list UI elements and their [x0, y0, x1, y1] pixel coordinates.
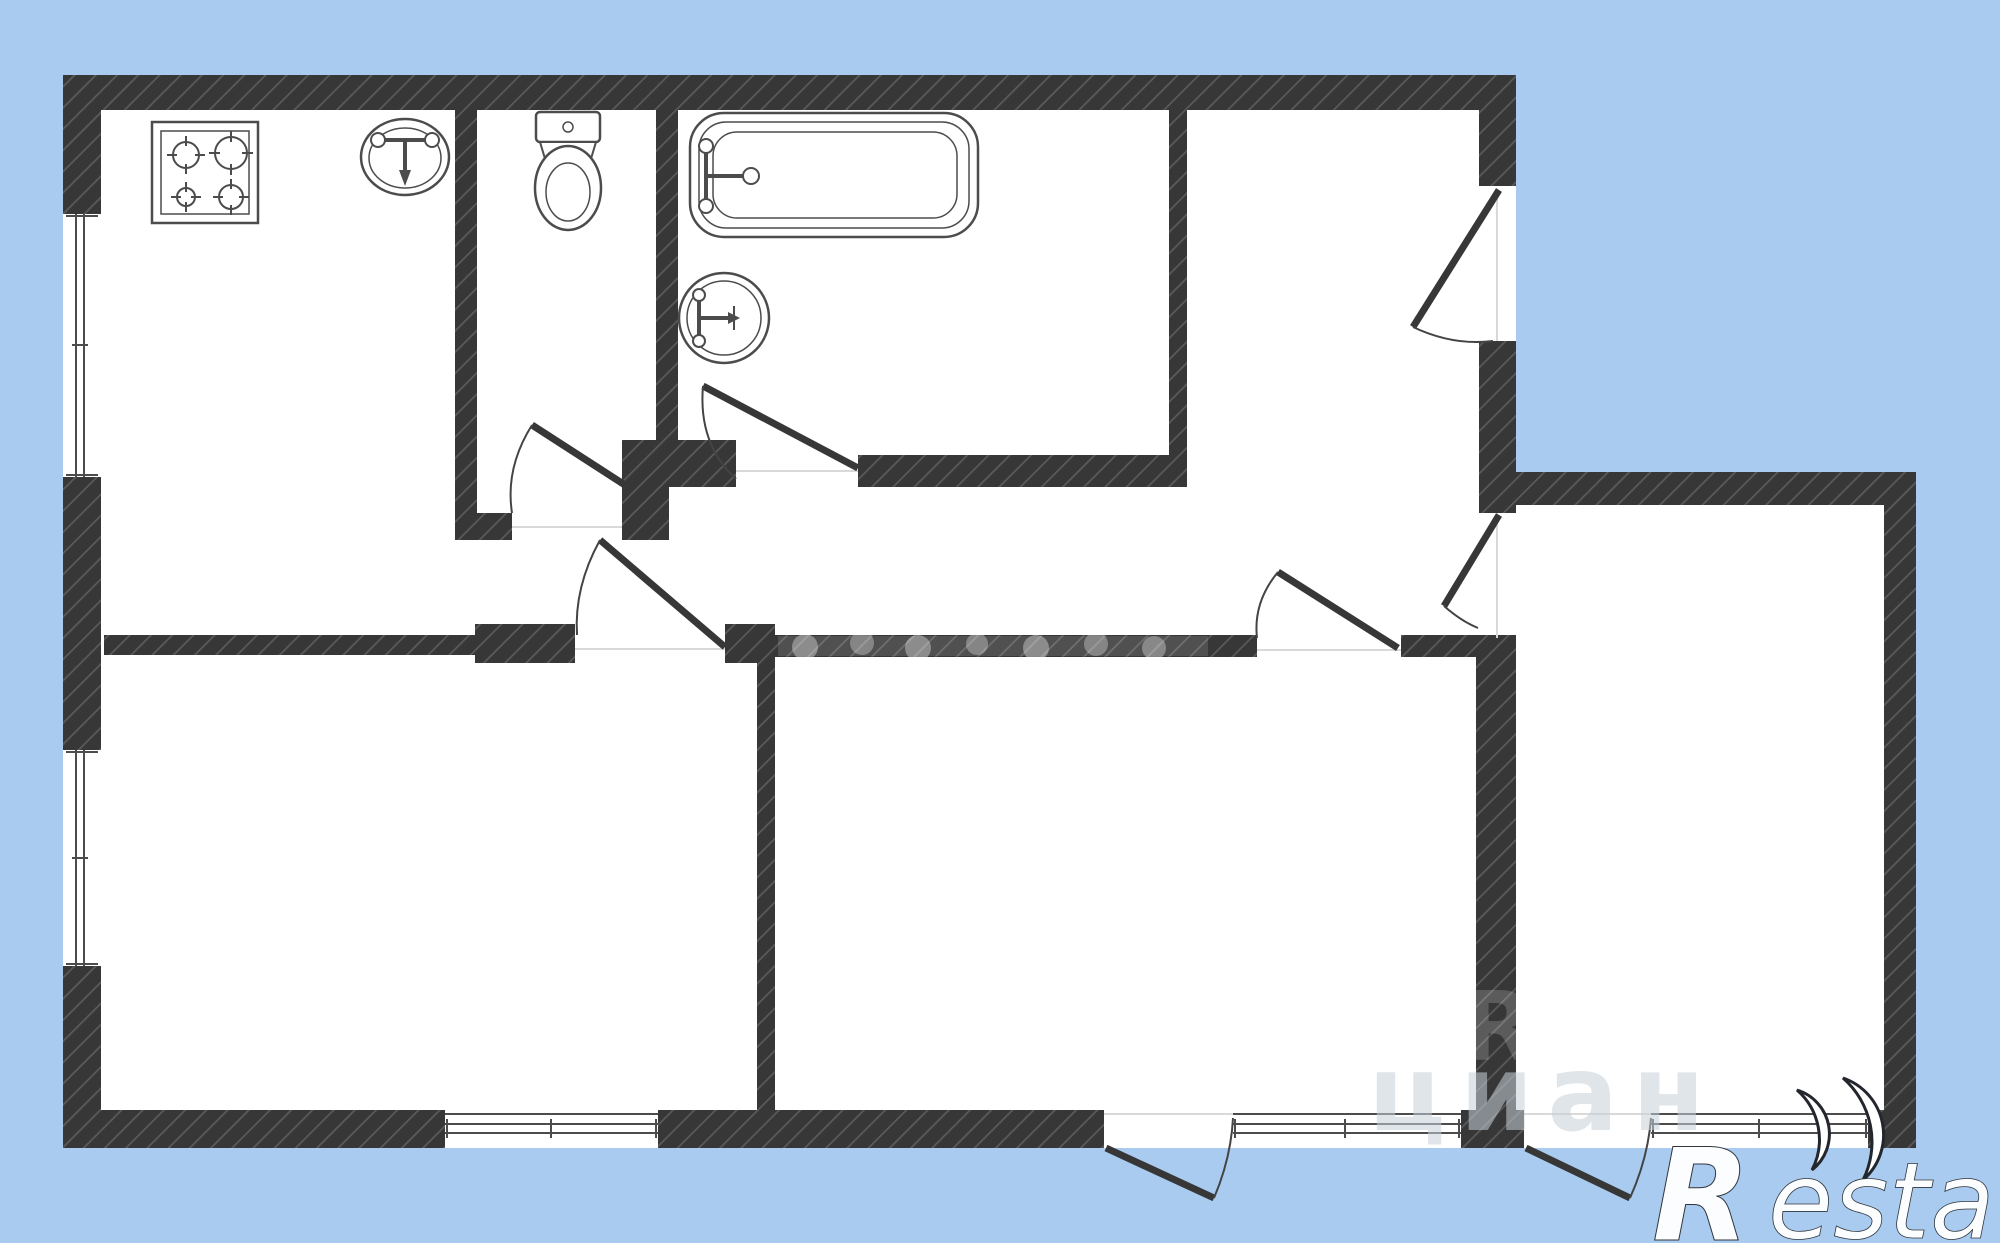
floorplan-canvas: циан R R estate: [0, 0, 2000, 1243]
window-icon: [445, 1110, 658, 1148]
wall-wing-top: [1516, 472, 1916, 505]
stove-icon: [152, 122, 258, 223]
wall-wc-bath-foot: [622, 440, 669, 540]
wall-hall-right: [1479, 110, 1516, 186]
wall-bottom: [63, 1110, 445, 1148]
wall-top: [63, 75, 1516, 110]
wall-wc-left: [455, 110, 477, 513]
floorplan-screenshot: циан R R estate: [0, 0, 2000, 1243]
logo-letter: R: [1652, 1122, 1751, 1243]
wall-bath-bottom: [858, 455, 1187, 487]
wall-hall-right: [1479, 341, 1516, 513]
toilet-icon: [535, 112, 601, 230]
wall-middle-jamb: [475, 624, 575, 663]
window-icon: [63, 750, 101, 966]
wall-middle-jamb: [1401, 635, 1476, 657]
wall-bath-right: [1169, 110, 1187, 487]
wall-wc-bath-divider: [656, 110, 678, 440]
wall-wc-foot: [455, 513, 512, 540]
floor-area: [63, 75, 1916, 1148]
kitchen-sink-icon: [361, 119, 449, 195]
window-icon: [63, 214, 101, 477]
wall-lower-divider: [757, 655, 775, 1110]
logo-rest: estate: [1768, 1140, 2000, 1243]
wall-watermark-letter: R: [1462, 973, 1535, 1083]
bathtub-icon: [690, 113, 978, 237]
washbasin-icon: [679, 273, 769, 363]
wall-bottom: [658, 1110, 1104, 1148]
wall-bath-jamb: [669, 440, 736, 487]
wall-middle: [104, 635, 475, 655]
wall-wing-right: [1884, 472, 1916, 1148]
